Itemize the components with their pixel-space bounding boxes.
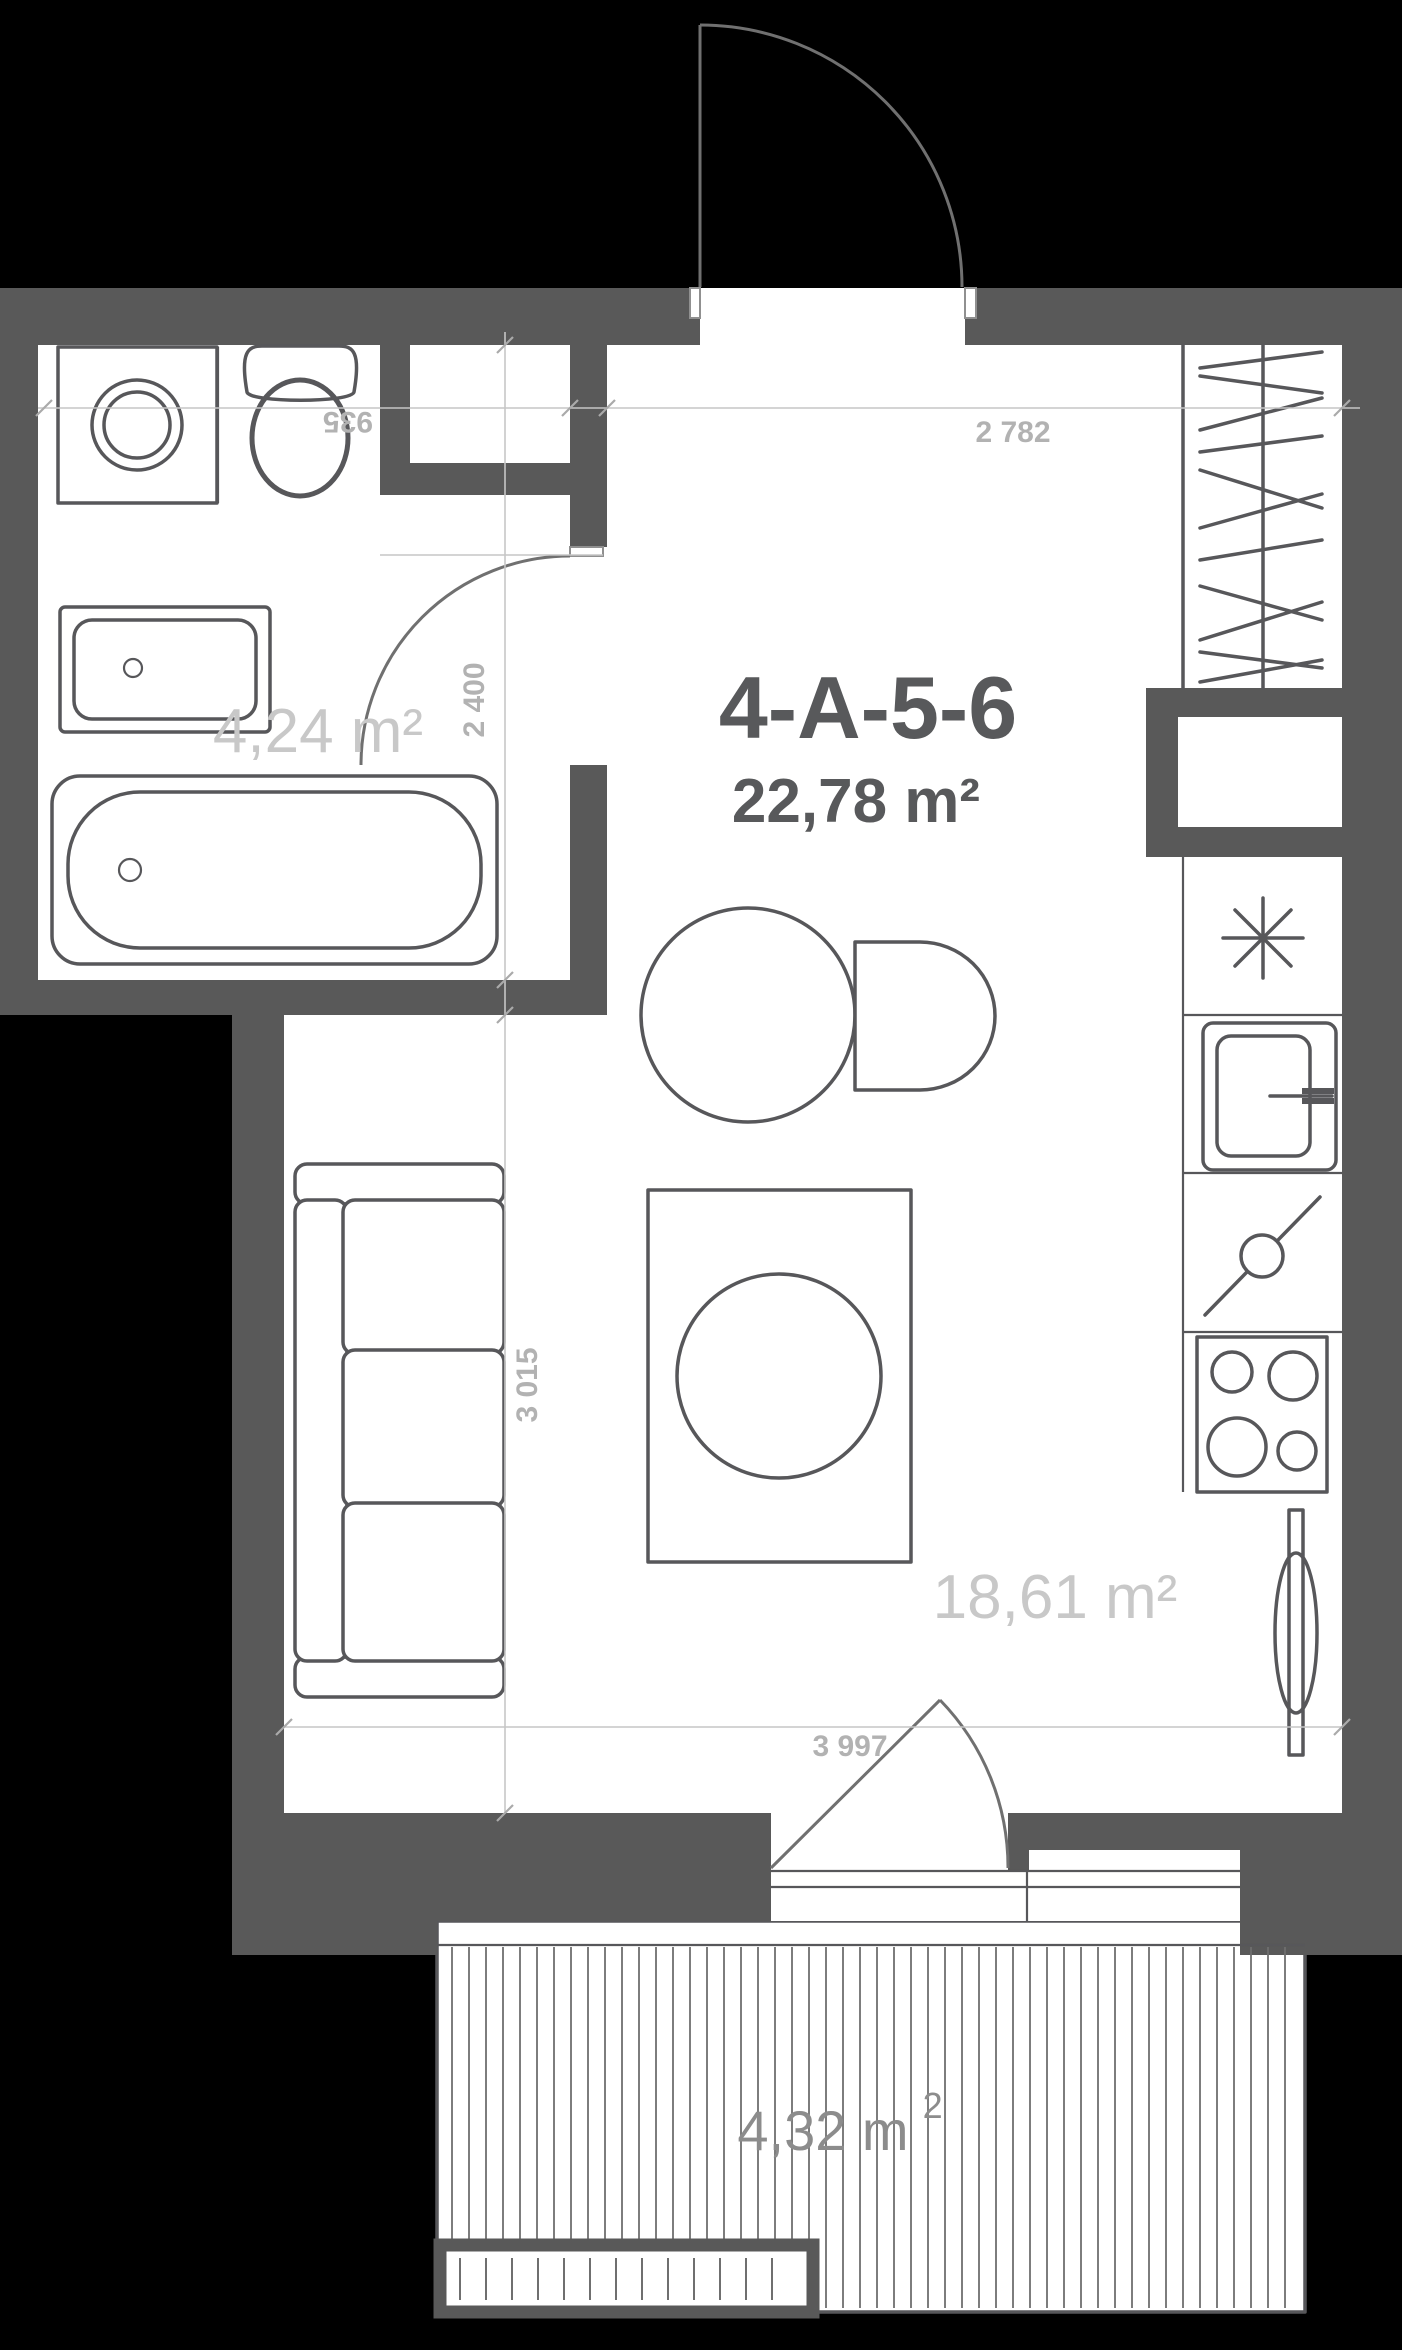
dimension-living-width: 3 997: [812, 1730, 887, 1763]
wall-shaft-bottom: [1146, 827, 1342, 857]
wall-bottom-left-stub: [232, 1921, 437, 1955]
sofa-armrest: [295, 1164, 504, 1204]
wall-bathroom-east-lower: [570, 765, 607, 1015]
wall-right: [1342, 288, 1402, 1955]
stove: [1197, 1337, 1327, 1492]
sofa: [295, 1164, 504, 1697]
faucet-base: [1302, 1088, 1334, 1094]
unit-area: 22,78 m²: [732, 767, 980, 836]
wall-top-left: [0, 288, 700, 345]
wall-niche-bottom: [380, 463, 605, 495]
floorplan-page: 4-A-5-6 22,78 m² 4,24 m² 18,61 m² 4,32 m…: [0, 0, 1402, 2350]
wall-bottom-right-stub: [1240, 1921, 1402, 1955]
sofa-seat-cushion: [343, 1503, 504, 1661]
planter-box: [440, 2245, 813, 2312]
wall-bathroom-bottom: [0, 980, 570, 1015]
sofa-seat-cushion: [343, 1350, 504, 1507]
wall-living-west: [232, 1015, 284, 1813]
sofa-backrest: [295, 1200, 347, 1661]
faucet-base: [1302, 1098, 1334, 1104]
dimension-hall-width: 2 782: [975, 416, 1050, 449]
unit-title: 4-A-5-6: [719, 658, 1017, 757]
balcony-door-jamb-slit: [1008, 1871, 1029, 1921]
window-opening: [1029, 1850, 1240, 1921]
balcony-area-value: 4,32 m: [737, 2099, 908, 2162]
planter-box-frame: [440, 2245, 813, 2312]
bathroom-area-label: 4,24 m²: [213, 697, 423, 766]
balcony-area-sup: 2: [923, 2085, 943, 2126]
sofa-armrest: [295, 1657, 504, 1697]
balcony-door-opening: [771, 1813, 1008, 1921]
dimension-living-depth: 3 015: [511, 1347, 544, 1422]
countertop-symbol-circle: [1241, 1235, 1283, 1277]
living-room-area-label: 18,61 m²: [933, 1563, 1178, 1632]
refrigerator-icon: [1223, 898, 1303, 978]
wall-bathroom-east-upper: [570, 343, 607, 547]
entry-jamb-right: [965, 288, 976, 318]
wall-left: [0, 288, 38, 1015]
dimension-bathroom-depth: 2 400: [458, 662, 491, 737]
sofa-seat-cushion: [343, 1200, 504, 1354]
wall-top-right: [965, 288, 1402, 345]
floorplan-drawing: 4-A-5-6 22,78 m² 4,24 m² 18,61 m² 4,32 m…: [0, 0, 1402, 2350]
dining-chair: [855, 942, 995, 1090]
dining-table: [641, 908, 855, 1122]
entry-jamb-left: [690, 288, 700, 318]
entry-opening: [700, 288, 965, 345]
dimension-toilet-width: 935: [323, 405, 373, 438]
